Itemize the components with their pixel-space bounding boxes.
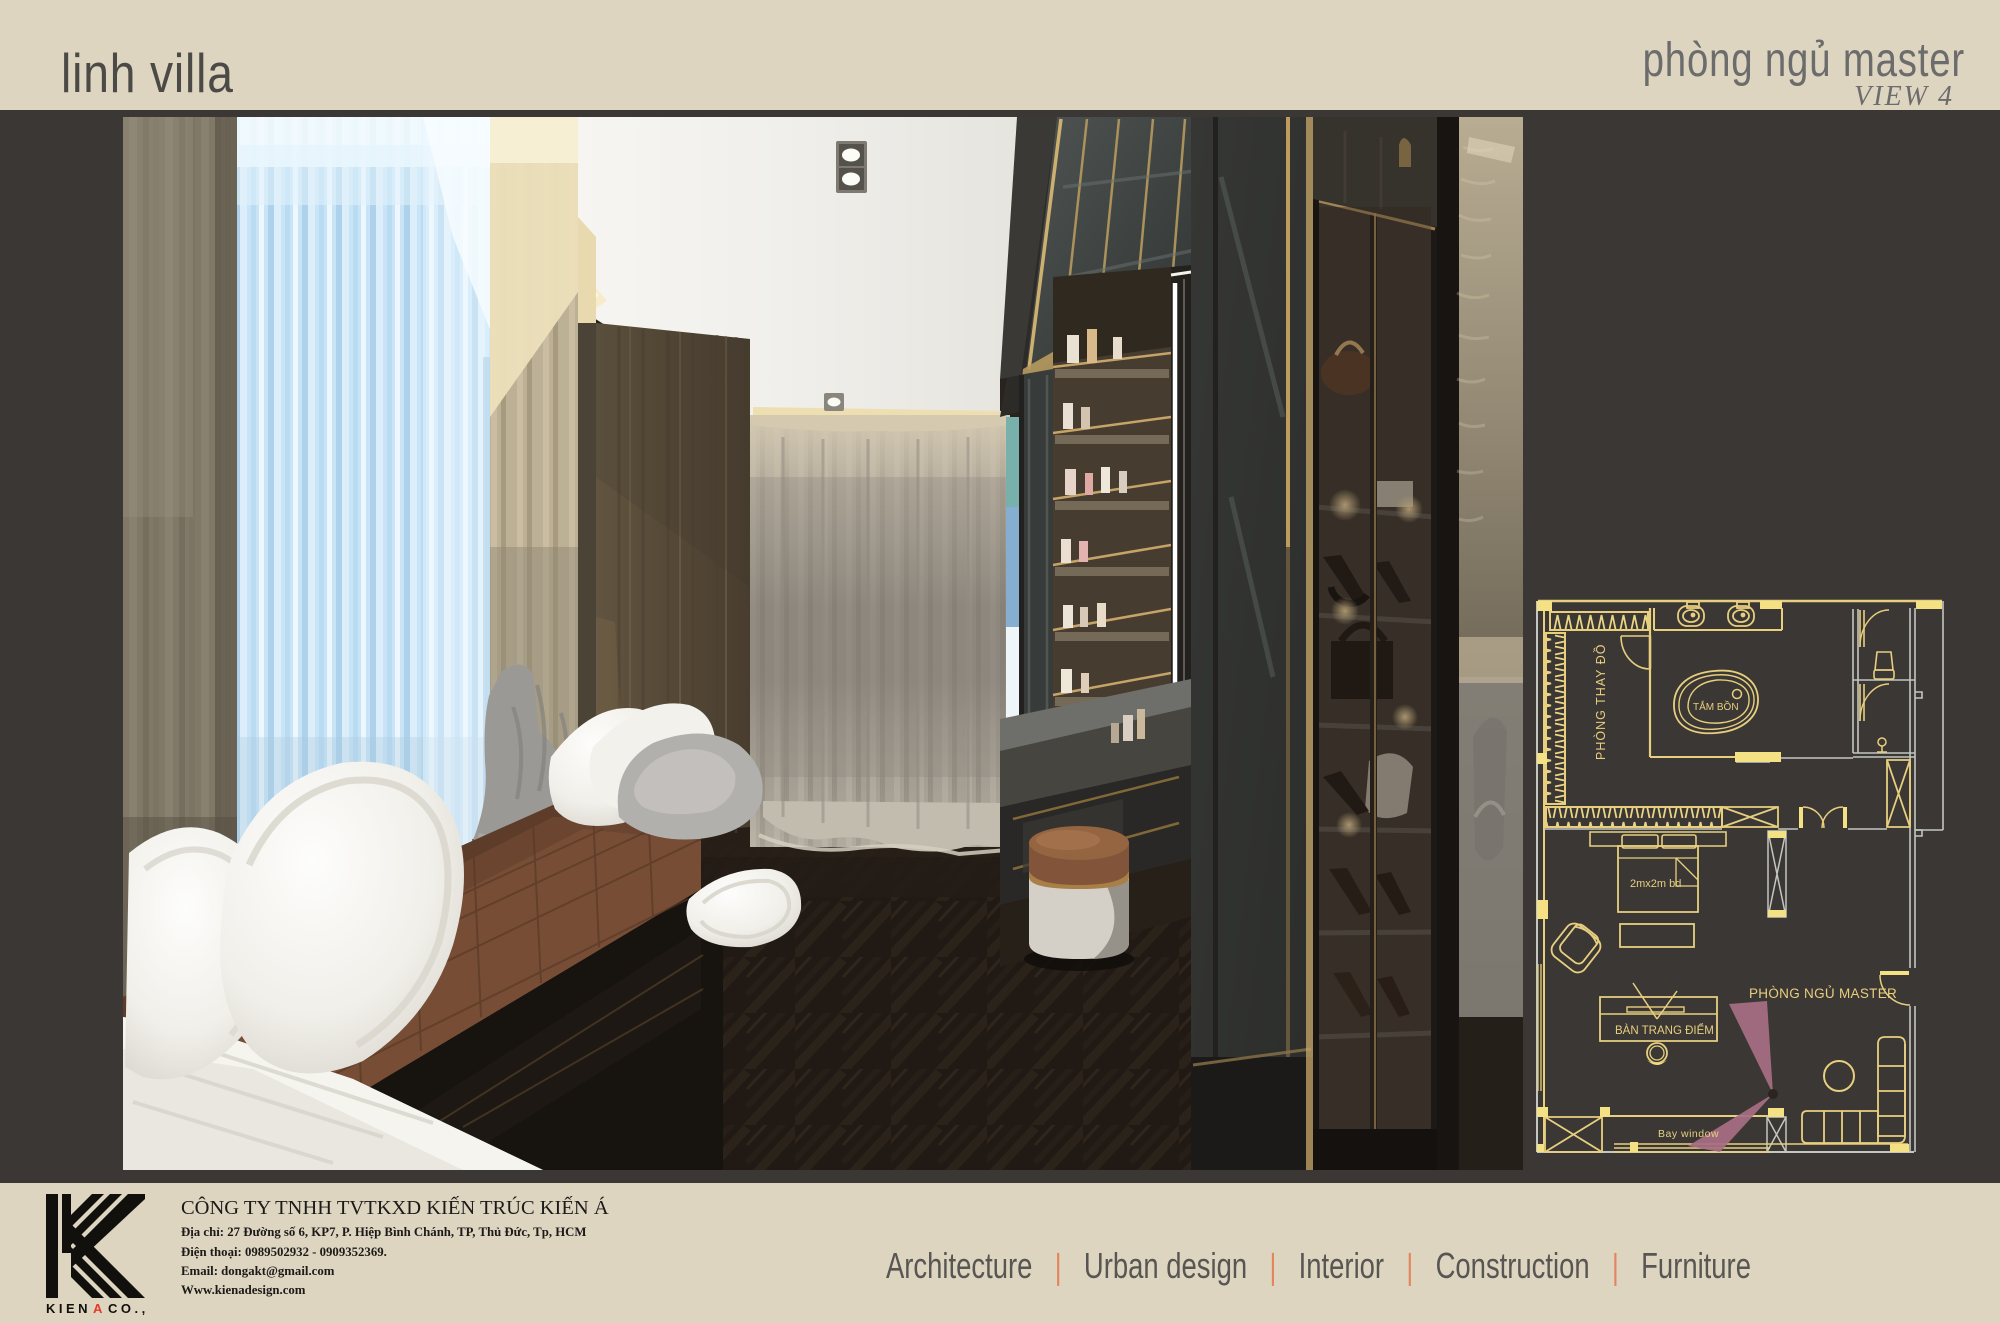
svg-text:CO.,: CO., xyxy=(108,1301,149,1316)
svg-text:PHÒNG NGỦ MASTER: PHÒNG NGỦ MASTER xyxy=(1749,986,1897,1001)
svg-text:2mx2m bd: 2mx2m bd xyxy=(1630,878,1681,890)
svg-text:PHÒNG THAY ĐỒ: PHÒNG THAY ĐỒ xyxy=(1593,644,1608,761)
svg-text:TẮM BỒN: TẮM BỒN xyxy=(1693,700,1739,713)
svg-text:BÀN TRANG ĐIỂM: BÀN TRANG ĐIỂM xyxy=(1615,1024,1714,1037)
svg-text:A: A xyxy=(93,1301,106,1316)
svg-text:KIEN: KIEN xyxy=(46,1301,91,1316)
svg-text:Bay window: Bay window xyxy=(1658,1128,1719,1140)
